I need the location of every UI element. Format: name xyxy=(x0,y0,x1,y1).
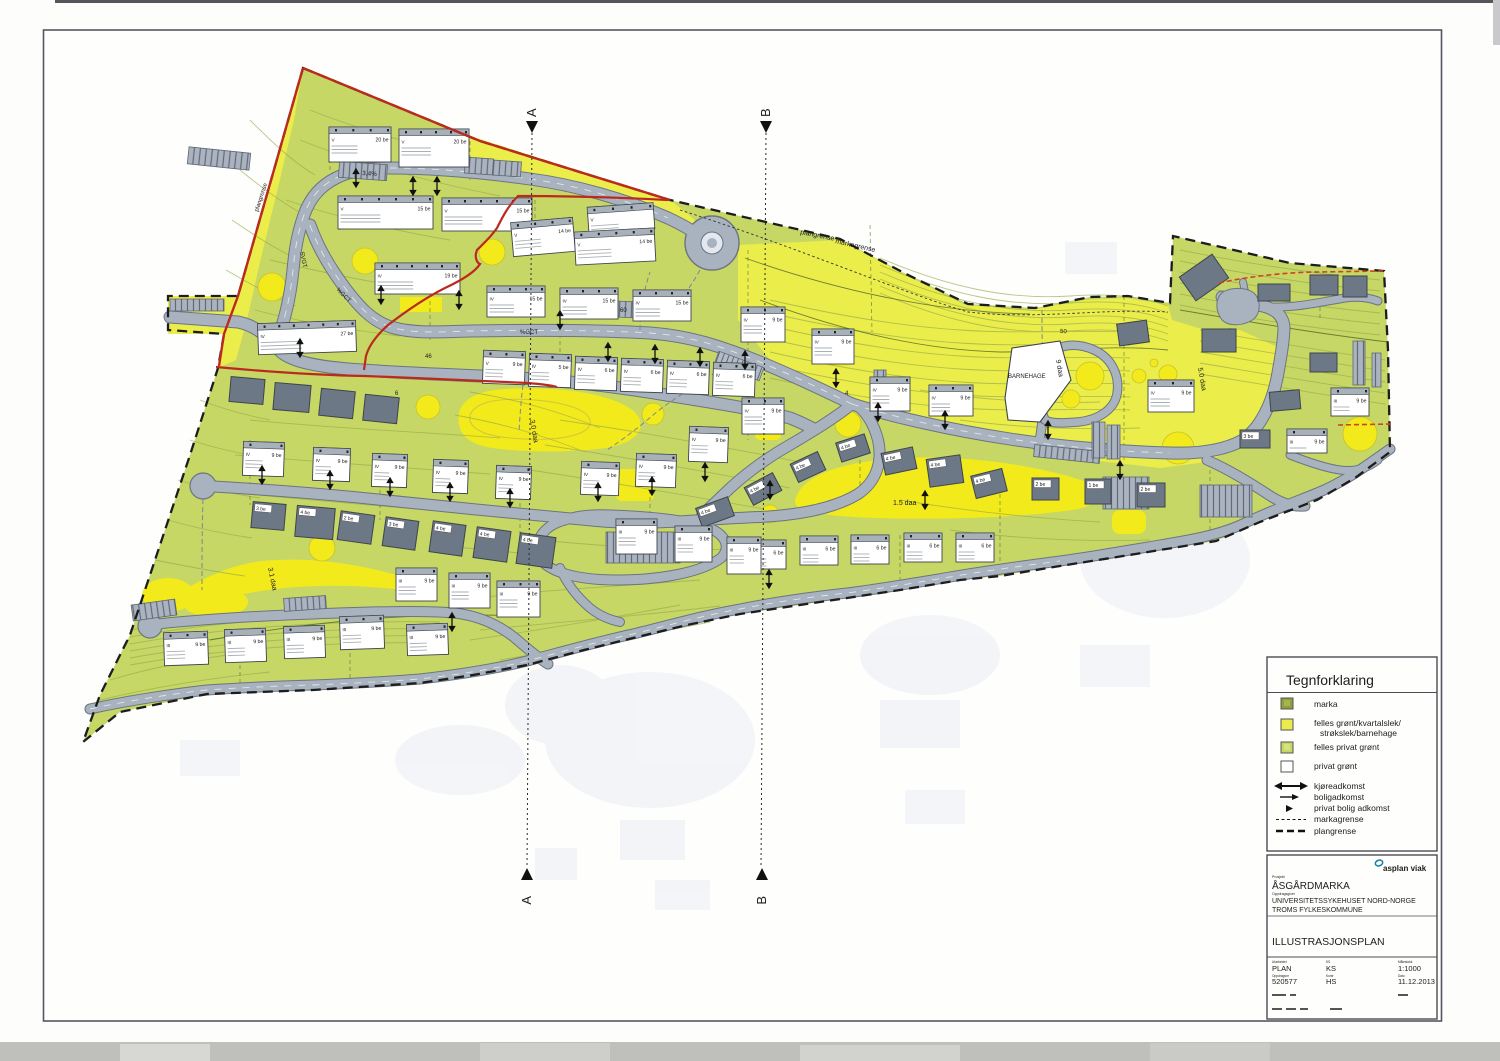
svg-text:9 be: 9 be xyxy=(394,465,404,471)
svg-text:4 be: 4 be xyxy=(300,510,310,517)
svg-text:felles grønt/kvartalslek/: felles grønt/kvartalslek/ xyxy=(1314,718,1402,728)
svg-text:III: III xyxy=(678,537,682,542)
svg-text:11.12.2013: 11.12.2013 xyxy=(1398,977,1435,986)
svg-text:ÅSGÅRDMARKA: ÅSGÅRDMARKA xyxy=(1272,879,1350,892)
svg-text:2 be: 2 be xyxy=(1036,482,1046,488)
svg-text:9 be: 9 be xyxy=(371,626,381,632)
svg-text:3 be: 3 be xyxy=(1244,434,1254,440)
svg-text:9 be: 9 be xyxy=(424,579,434,585)
svg-text:BARNEHAGE: BARNEHAGE xyxy=(1008,374,1046,380)
svg-text:3 be: 3 be xyxy=(256,506,266,513)
svg-text:20 be: 20 be xyxy=(454,140,467,146)
svg-text:B: B xyxy=(754,896,769,905)
svg-text:III: III xyxy=(1334,399,1338,404)
svg-text:9 be: 9 be xyxy=(699,537,709,543)
svg-text:HS: HS xyxy=(1326,977,1336,986)
svg-text:markagrense: markagrense xyxy=(1314,814,1364,824)
svg-text:9 be: 9 be xyxy=(337,459,347,465)
svg-text:9 be: 9 be xyxy=(772,318,782,324)
svg-text:15 be: 15 be xyxy=(530,297,543,303)
svg-text:III: III xyxy=(730,548,734,553)
svg-text:III: III xyxy=(619,530,623,535)
svg-text:19 be: 19 be xyxy=(445,274,458,280)
svg-text:A: A xyxy=(519,896,534,905)
svg-text:6 be: 6 be xyxy=(929,544,939,550)
svg-text:9 be: 9 be xyxy=(644,530,654,536)
svg-text:felles privat grønt: felles privat grønt xyxy=(1314,742,1380,752)
svg-text:9 be: 9 be xyxy=(1356,399,1366,405)
svg-text:ILLUSTRASJONSPLAN: ILLUSTRASJONSPLAN xyxy=(1272,936,1385,948)
svg-text:9 be: 9 be xyxy=(253,639,263,645)
svg-text:27 be: 27 be xyxy=(340,331,353,337)
svg-text:15 be: 15 be xyxy=(517,209,530,215)
svg-text:9 be: 9 be xyxy=(312,636,322,642)
svg-text:1:1000: 1:1000 xyxy=(1398,964,1421,973)
svg-text:1.5 daa: 1.5 daa xyxy=(893,500,916,507)
svg-text:asplan viak: asplan viak xyxy=(1383,864,1427,873)
svg-text:9 be: 9 be xyxy=(512,362,522,368)
svg-text:III: III xyxy=(286,637,290,642)
svg-text:6 be: 6 be xyxy=(604,368,614,374)
svg-text:9 be: 9 be xyxy=(1314,440,1324,446)
svg-text:privat grønt: privat grønt xyxy=(1314,761,1358,771)
svg-text:III: III xyxy=(452,584,456,589)
svg-text:III: III xyxy=(854,546,858,551)
svg-text:6 be: 6 be xyxy=(981,544,991,550)
svg-text:6 be: 6 be xyxy=(773,551,783,557)
svg-text:9 be: 9 be xyxy=(606,473,616,479)
svg-text:privat bolig adkomst: privat bolig adkomst xyxy=(1314,803,1390,813)
svg-text:UNIVERSITETSSYKEHUSET NORD-NO: UNIVERSITETSSYKEHUSET NORD-NORGE xyxy=(1272,898,1416,905)
svg-text:9 be: 9 be xyxy=(771,409,781,415)
svg-text:plangrense: plangrense xyxy=(1314,826,1356,836)
svg-text:III: III xyxy=(166,643,170,648)
svg-text:Prosjekt: Prosjekt xyxy=(1272,875,1285,879)
svg-text:9 be: 9 be xyxy=(518,477,528,483)
svg-text:III: III xyxy=(227,640,231,645)
svg-text:kjøreadkomst: kjøreadkomst xyxy=(1314,781,1366,791)
svg-text:III: III xyxy=(959,544,963,549)
svg-text:Tegnforklaring: Tegnforklaring xyxy=(1286,672,1374,688)
svg-text:6 be: 6 be xyxy=(696,372,706,378)
svg-text:Oppdragsgiver: Oppdragsgiver xyxy=(1272,892,1296,896)
svg-text:III: III xyxy=(500,592,504,597)
svg-text:9 be: 9 be xyxy=(841,340,851,346)
svg-text:III: III xyxy=(399,579,403,584)
svg-text:9 be: 9 be xyxy=(195,642,205,648)
svg-text:9 be: 9 be xyxy=(897,388,907,394)
svg-text:15 be: 15 be xyxy=(418,207,431,213)
svg-text:marka: marka xyxy=(1314,699,1338,709)
svg-text:%GCT: %GCT xyxy=(520,330,538,336)
svg-text:III: III xyxy=(409,635,413,640)
svg-text:6 be: 6 be xyxy=(876,546,886,552)
svg-text:boligadkomst: boligadkomst xyxy=(1314,792,1365,802)
svg-text:50: 50 xyxy=(1060,329,1068,335)
svg-text:6 be: 6 be xyxy=(825,547,835,553)
svg-text:46: 46 xyxy=(425,354,432,360)
svg-text:9 be: 9 be xyxy=(663,465,673,471)
svg-text:9 be: 9 be xyxy=(1181,391,1191,397)
svg-text:60: 60 xyxy=(620,308,627,314)
svg-text:15 be: 15 be xyxy=(603,299,616,305)
svg-text:3,4%: 3,4% xyxy=(362,170,377,178)
svg-text:14 be: 14 be xyxy=(639,239,652,246)
svg-text:15 be: 15 be xyxy=(676,301,689,307)
svg-text:520577: 520577 xyxy=(1272,977,1297,986)
svg-text:III: III xyxy=(1290,440,1294,445)
svg-text:9 be: 9 be xyxy=(455,471,465,477)
svg-text:A: A xyxy=(524,108,539,117)
svg-text:B: B xyxy=(758,108,773,117)
svg-text:9 be: 9 be xyxy=(477,584,487,590)
svg-text:14 be: 14 be xyxy=(558,228,572,235)
svg-text:1 be: 1 be xyxy=(1089,483,1099,489)
svg-text:III: III xyxy=(342,627,346,632)
svg-text:6 be: 6 be xyxy=(742,374,752,380)
svg-text:9 be: 9 be xyxy=(715,438,725,444)
svg-text:9 be: 9 be xyxy=(960,396,970,402)
svg-text:III: III xyxy=(803,547,807,552)
svg-text:KS: KS xyxy=(1326,964,1336,973)
svg-text:2 be: 2 be xyxy=(1141,487,1151,493)
svg-text:9 be: 9 be xyxy=(748,548,758,554)
svg-text:TROMS FYLKESKOMMUNE: TROMS FYLKESKOMMUNE xyxy=(1272,907,1363,914)
svg-text:9 be: 9 be xyxy=(435,634,445,640)
svg-text:9 be: 9 be xyxy=(271,453,281,459)
svg-text:5 be: 5 be xyxy=(558,365,568,371)
svg-text:6 be: 6 be xyxy=(650,370,660,376)
svg-text:strøkslek/barnehage: strøkslek/barnehage xyxy=(1320,728,1397,738)
svg-text:20 be: 20 be xyxy=(376,138,389,144)
svg-text:III: III xyxy=(907,544,911,549)
svg-text:PLAN: PLAN xyxy=(1272,964,1292,973)
